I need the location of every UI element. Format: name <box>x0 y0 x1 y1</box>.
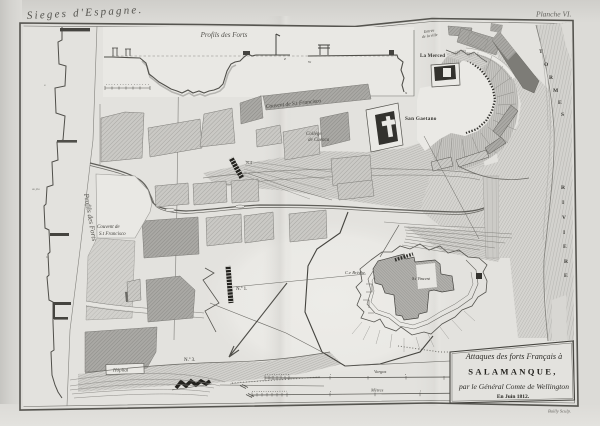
svg-text:En Juin 1812.: En Juin 1812. <box>497 394 530 400</box>
svg-text:de Cuenca: de Cuenca <box>308 138 330 143</box>
svg-text:E: E <box>563 244 567 250</box>
svg-text:La Merced: La Merced <box>420 54 445 59</box>
svg-text:S.t Vincent: S.t Vincent <box>412 276 431 281</box>
svg-text:z: z <box>284 56 286 61</box>
svg-text:Collége: Collége <box>306 132 322 137</box>
svg-text:S: S <box>561 112 564 118</box>
svg-text:E: E <box>564 273 568 279</box>
svg-text:Bailly Sculp.: Bailly Sculp. <box>548 409 571 414</box>
svg-text:S.t Francisco: S.t Francisco <box>99 232 126 237</box>
svg-text:au pla: au pla <box>32 187 40 191</box>
svg-text:E: E <box>558 100 562 106</box>
svg-text:Planche VI.: Planche VI. <box>535 10 572 19</box>
svg-text:N.º 1.: N.º 1. <box>236 286 247 292</box>
svg-text:M: M <box>553 88 559 94</box>
svg-text:Couvent de: Couvent de <box>97 225 120 230</box>
svg-text:SALAMANQUE,: SALAMANQUE, <box>468 367 558 377</box>
svg-text:I: I <box>563 230 565 236</box>
svg-text:Mètres: Mètres <box>370 388 384 393</box>
svg-text:par le Général Comte de Wellin: par le Général Comte de Wellington <box>458 382 569 391</box>
svg-text:Vargas: Vargas <box>374 369 387 374</box>
svg-text:Profils des Forts: Profils des Forts <box>200 31 248 39</box>
svg-text:N.º 3.: N.º 3. <box>184 357 195 363</box>
svg-text:Attaques des forts Français à: Attaques des forts Français à <box>465 352 562 361</box>
svg-text:T: T <box>539 49 543 55</box>
svg-text:N.4: N.4 <box>246 160 252 165</box>
svg-text:I: I <box>562 200 564 206</box>
svg-text:O: O <box>544 62 549 68</box>
svg-text:San Gaetano: San Gaetano <box>405 116 437 122</box>
svg-text:V: V <box>562 215 566 221</box>
